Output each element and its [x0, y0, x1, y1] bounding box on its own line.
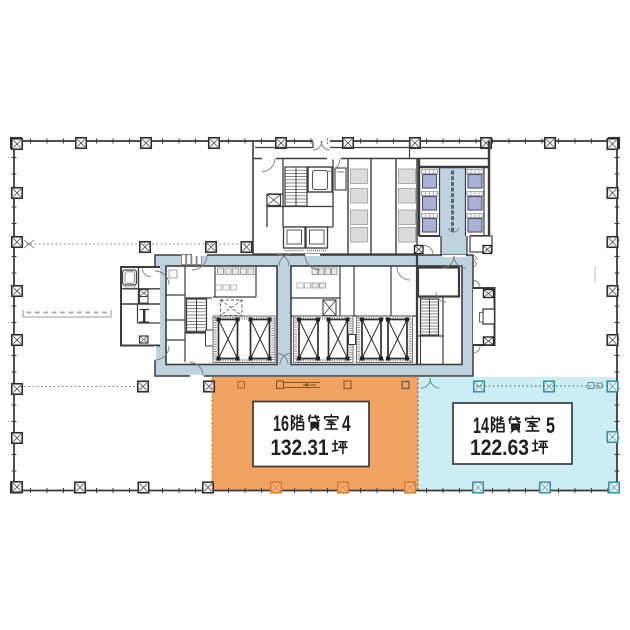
- svg-text:16: 16: [273, 411, 289, 436]
- svg-text:4: 4: [342, 411, 351, 436]
- svg-text:5: 5: [546, 413, 555, 438]
- svg-text:132.31: 132.31: [271, 435, 329, 460]
- svg-text:122.63: 122.63: [470, 435, 529, 460]
